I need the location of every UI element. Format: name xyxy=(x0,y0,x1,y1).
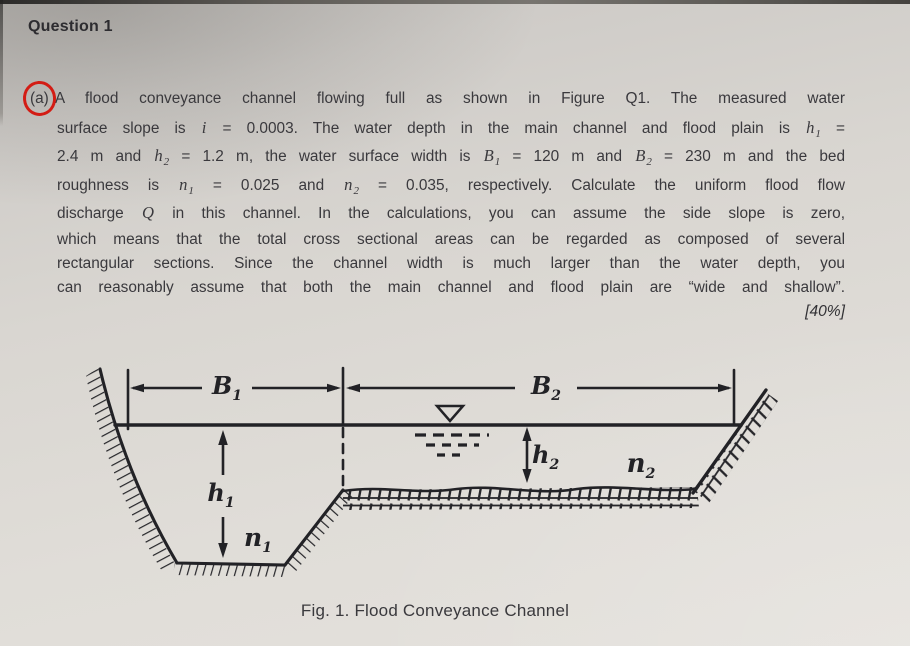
question-paragraph: (a)A flood conveyance channel flowing fu… xyxy=(30,85,845,325)
arrow-up-icon xyxy=(522,427,531,441)
arrow-down-icon xyxy=(522,469,531,483)
math-subscript: 1 xyxy=(495,156,501,168)
math-variable: h xyxy=(805,118,815,137)
question-line: surface slope is i = 0.0003. The water d… xyxy=(57,114,845,143)
math-variable: Q xyxy=(141,203,155,222)
arrow-right-icon xyxy=(327,384,341,393)
label-B1: B1 xyxy=(205,374,249,403)
arrow-right-icon xyxy=(718,384,732,393)
question-line: roughness is n1 = 0.025 and n2 = 0.035, … xyxy=(57,171,845,200)
math-variable: h xyxy=(153,146,163,165)
question-line: rectangular sections. Since the channel … xyxy=(57,252,845,276)
right-bank-line xyxy=(693,390,766,493)
bank-hatching xyxy=(86,368,778,577)
question-line: (a)A flood conveyance channel flowing fu… xyxy=(57,85,845,114)
water-level-icon xyxy=(415,406,489,455)
photographed-exam-page: Question 1 (a)A flood conveyance channel… xyxy=(0,0,910,646)
question-line: discharge Q in this channel. In the calc… xyxy=(57,199,845,228)
dimension-h2 xyxy=(522,427,531,483)
right-bank-hatch xyxy=(695,391,778,503)
math-variable: n xyxy=(343,175,353,194)
question-title: Question 1 xyxy=(28,18,113,36)
math-subscript: 1 xyxy=(188,185,194,197)
figure-caption: Fig. 1. Flood Conveyance Channel xyxy=(85,601,785,621)
channel-outline xyxy=(100,369,766,565)
arrow-left-icon xyxy=(130,384,144,393)
label-B2: B2 xyxy=(519,374,573,403)
arrow-down-icon xyxy=(218,543,228,558)
arrow-up-icon xyxy=(218,430,228,445)
figure-q1: B1 B2 h1 n1 h2 n2 xyxy=(85,350,785,600)
photo-left-edge xyxy=(0,0,3,126)
question-line: 2.4 m and h2 = 1.2 m, the water surface … xyxy=(57,142,845,171)
question-line: can reasonably assume that both the main… xyxy=(57,276,845,300)
label-h1: h1 xyxy=(199,481,243,510)
channel-cross-section-drawing xyxy=(85,350,785,600)
math-subscript: 2 xyxy=(646,156,652,168)
label-n1: n1 xyxy=(235,525,281,555)
label-n2: n2 xyxy=(616,451,666,481)
math-variable: i xyxy=(201,118,208,137)
part-label-a: (a) xyxy=(30,85,49,114)
red-circle-annotation xyxy=(22,80,58,117)
label-h2: h2 xyxy=(532,443,576,472)
math-variable: B xyxy=(634,146,646,165)
channel-right-slope-hatch xyxy=(285,489,353,574)
math-subscript: 2 xyxy=(164,156,170,168)
photo-top-edge xyxy=(0,0,910,4)
marks-allocation: [40%] xyxy=(57,300,845,324)
math-subscript: 2 xyxy=(353,185,359,197)
arrow-left-icon xyxy=(346,384,360,393)
question-line: which means that the total cross section… xyxy=(57,228,845,252)
math-subscript: 1 xyxy=(815,128,821,140)
math-variable: B xyxy=(483,146,495,165)
math-variable: n xyxy=(178,175,188,194)
